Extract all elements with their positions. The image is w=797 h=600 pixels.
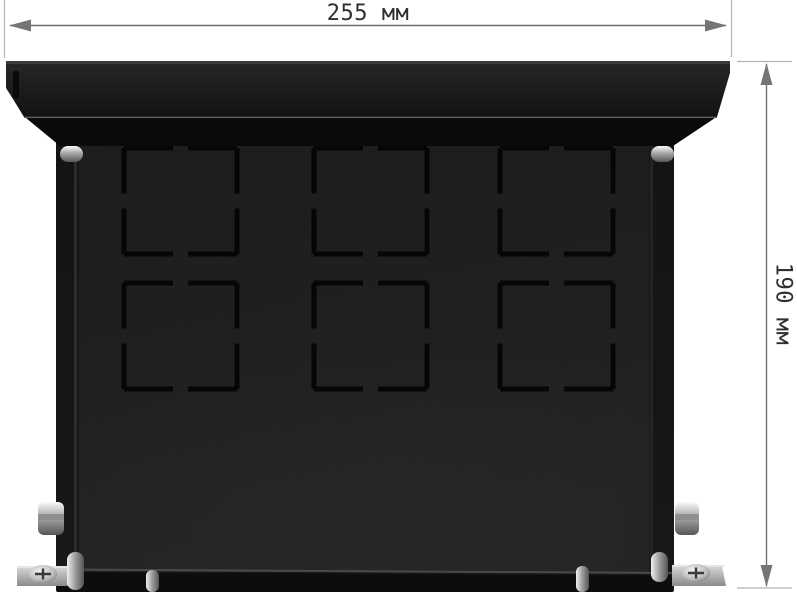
side-screw-top-right: [651, 146, 674, 162]
product-screenshot: 255 мм 190 мм: [0, 0, 797, 600]
corner-pin-bottom-right: [651, 552, 668, 582]
bottom-stud-left: [146, 570, 159, 592]
enclosure-illustration: 255 мм 190 мм: [0, 0, 797, 600]
mounting-foot-right: [672, 564, 726, 586]
height-dimension-label: 190 мм: [771, 263, 796, 345]
height-arrow-up: [761, 63, 773, 85]
enclosure: [6, 61, 730, 592]
height-dimension: 190 мм: [737, 62, 796, 589]
lid-left-slot: [13, 71, 19, 98]
width-dimension-label: 255 мм: [327, 1, 409, 26]
corner-pin-bottom-left: [67, 552, 84, 590]
cable-gland-left: [38, 502, 64, 535]
right-wall-edge: [650, 134, 653, 570]
lid-underside-shadow: [26, 118, 715, 146]
left-wall-edge: [74, 134, 77, 570]
width-arrow-right: [705, 20, 727, 32]
side-screw-top-left: [60, 146, 83, 162]
cable-gland-right: [675, 502, 699, 535]
bottom-stud-right: [576, 566, 589, 592]
height-arrow-down: [761, 565, 773, 587]
width-dimension: 255 мм: [5, 0, 732, 58]
front-panel-sheen: [79, 300, 649, 572]
width-arrow-left: [9, 20, 31, 32]
lid-front: [6, 64, 730, 117]
